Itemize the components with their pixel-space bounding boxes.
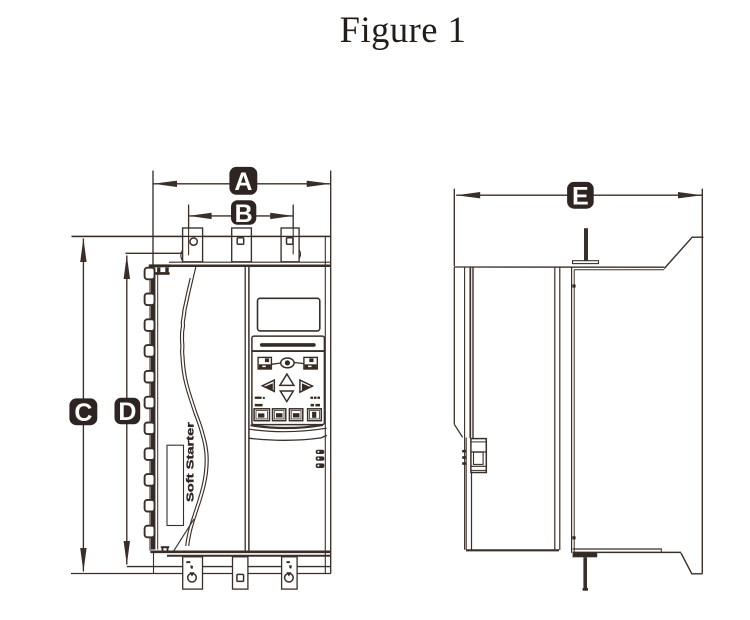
svg-text:E: E — [572, 183, 589, 211]
svg-text:Figure 1: Figure 1 — [340, 9, 467, 50]
svg-text:A: A — [234, 168, 252, 196]
svg-text:B: B — [235, 200, 253, 228]
svg-text:D: D — [118, 398, 136, 426]
svg-text:C: C — [74, 399, 92, 427]
svg-text:Soft Starter: Soft Starter — [186, 422, 197, 502]
